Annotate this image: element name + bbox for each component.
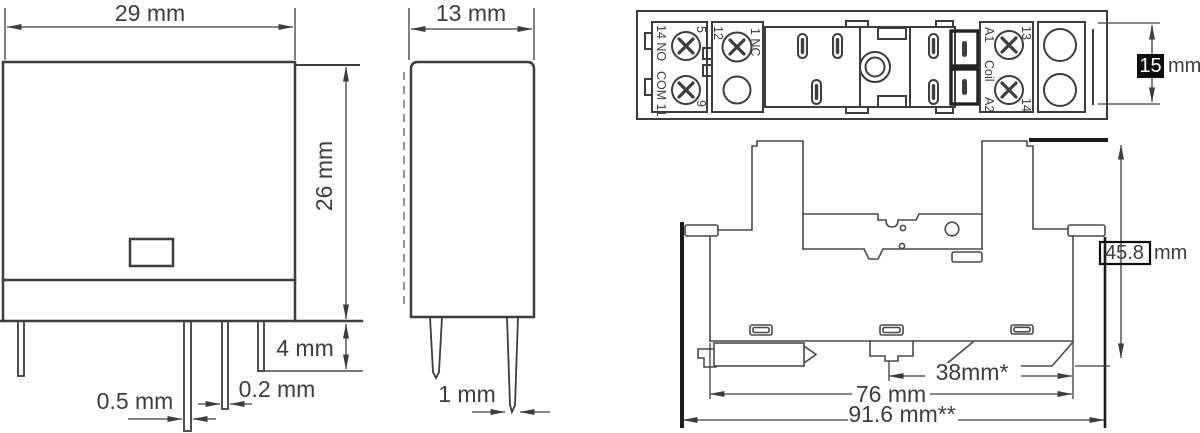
recess-rect <box>952 252 982 262</box>
center-foot <box>870 341 913 361</box>
rail-left-section <box>714 343 804 366</box>
terminal-label-14no: 14 NO <box>654 25 668 61</box>
socket-pin-field <box>765 21 978 113</box>
dim-socket-width: 15 mm <box>1098 23 1200 104</box>
relay-side-body <box>411 62 534 317</box>
terminal-block-coil: A1 Coil A2 13 14 <box>980 22 1033 112</box>
dim-relay-width: 29 mm <box>5 0 295 60</box>
relay-width-label: 29 mm <box>115 0 185 26</box>
terminal-hole <box>724 77 751 104</box>
small-hole-1 <box>900 225 905 230</box>
screw-terminal-nc <box>723 33 752 62</box>
terminal-label-1nc: 1 NC <box>748 28 762 56</box>
relay-pin-right <box>258 321 264 371</box>
pin-width-label: 0.2 mm <box>239 376 316 402</box>
pin-slots <box>798 34 938 104</box>
latch-hole <box>945 222 959 236</box>
dim-socket-height: 45.8 mm <box>1075 145 1187 366</box>
base-slots <box>750 325 1033 335</box>
socket-side-view: 45.8 mm 38mm* 76 mm 91.6 mm** <box>682 140 1187 428</box>
socket-clip-right <box>1068 225 1105 236</box>
relay-side-view: 13 mm 1 mm <box>404 0 550 412</box>
screw-terminal-13 <box>995 31 1023 59</box>
mount-hole-block <box>1038 22 1093 112</box>
terminal-label-coil: Coil <box>982 60 996 82</box>
relay-pin-long <box>184 321 191 431</box>
relay-front-window <box>130 239 173 266</box>
relay-front-body <box>3 62 295 280</box>
dim-relay-depth: 13 mm <box>409 0 534 60</box>
relay-depth-label: 13 mm <box>436 0 506 26</box>
pin-thickness-label: 0.5 mm <box>97 388 174 414</box>
overall-width-label: 91.6 mm** <box>848 401 955 427</box>
terminal-label-9: 9 <box>694 100 708 107</box>
relay-side-pin-left <box>430 317 442 378</box>
dim-overall-width-916: 91.6 mm** <box>683 401 1104 427</box>
socket-height-unit: mm <box>1154 242 1187 264</box>
dim-pin-width: 0.2 mm <box>198 376 315 404</box>
relay-pin-mid <box>222 321 228 409</box>
relay-height-label: 26 mm <box>311 141 337 211</box>
side-pin-label: 1 mm <box>438 381 496 407</box>
relay-dimension-drawing: 29 mm 26 mm 4 mm 0.5 mm <box>0 0 1200 433</box>
screw-terminal-14b <box>995 76 1023 104</box>
socket-clip-left <box>685 225 718 236</box>
terminal-label-12: 12 <box>711 26 725 40</box>
dim-pin-length: 4 mm <box>264 324 362 371</box>
socket-height-value: 45.8 <box>1105 242 1144 264</box>
terminal-label-a2: A2 <box>982 97 996 112</box>
relay-pin-left <box>18 321 24 376</box>
dim-relay-height: 26 mm <box>297 65 359 319</box>
socket-body-outline <box>710 141 1073 341</box>
center-mount-hole <box>860 52 890 82</box>
small-hole-2 <box>899 243 904 248</box>
terminal-block-left: 14 NO COM 11 5 9 <box>645 22 712 117</box>
socket-width-unit: mm <box>1168 55 1200 77</box>
technical-drawing-page: 29 mm 26 mm 4 mm 0.5 mm <box>0 0 1200 433</box>
rail-break-arrow <box>804 346 816 363</box>
pitch-label: 38mm* <box>936 359 1009 385</box>
socket-width-value: 15 <box>1139 55 1161 77</box>
relay-front-base <box>1 280 362 321</box>
terminal-label-13: 13 <box>1019 26 1033 40</box>
terminal-label-com11: COM 11 <box>654 71 668 117</box>
terminal-label-a1: A1 <box>982 27 996 42</box>
terminal-label-5: 5 <box>694 26 708 33</box>
relay-side-pin-right <box>507 317 518 412</box>
socket-top-view: 14 NO COM 11 5 9 12 1 NC <box>637 11 1200 119</box>
screw-terminal-14 <box>672 32 700 60</box>
terminal-block-nc: 12 1 NC <box>711 22 763 112</box>
relay-front-view: 29 mm 26 mm 4 mm 0.5 mm <box>1 0 362 431</box>
terminal-label-14b: 14 <box>1019 98 1033 112</box>
dim-side-pin: 1 mm <box>438 381 550 412</box>
pin-length-label: 4 mm <box>276 335 334 361</box>
